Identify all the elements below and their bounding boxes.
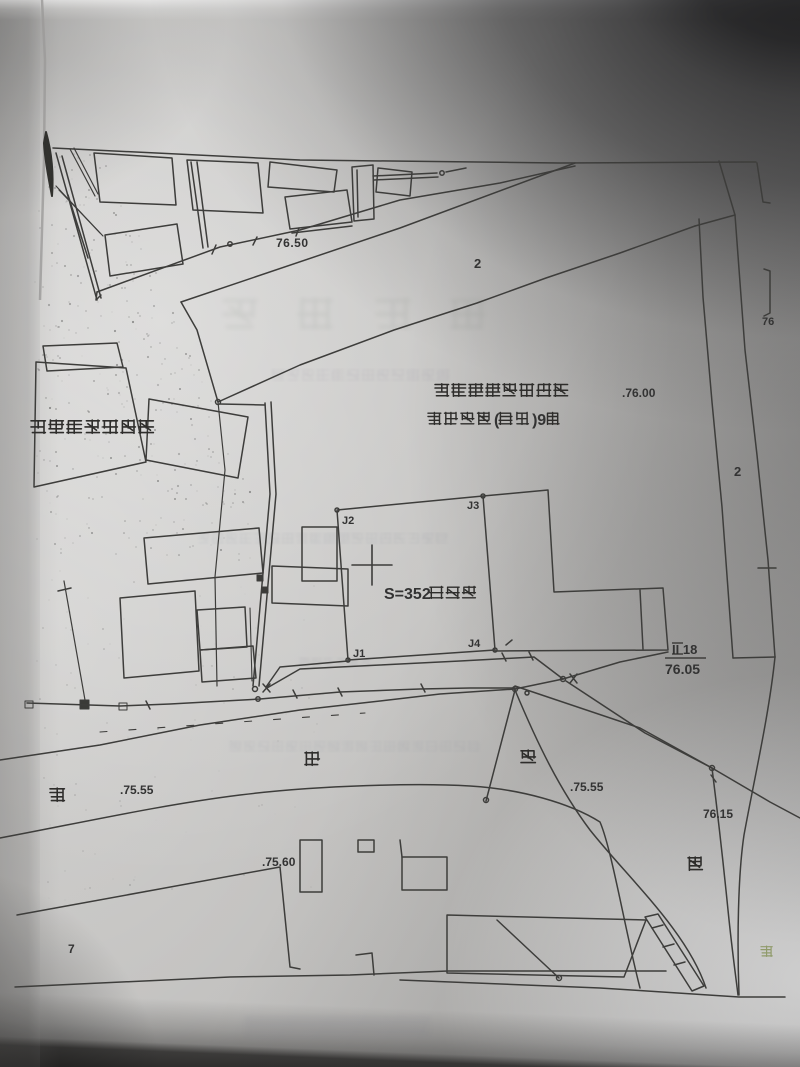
svg-text:9: 9 bbox=[537, 412, 546, 429]
svg-text:76.50: 76.50 bbox=[276, 236, 309, 250]
svg-text:J3: J3 bbox=[467, 500, 479, 512]
svg-text:S=352: S=352 bbox=[384, 586, 431, 603]
svg-text:J1: J1 bbox=[353, 648, 365, 660]
svg-text:.75.60: .75.60 bbox=[262, 855, 296, 869]
svg-text:.75.55: .75.55 bbox=[120, 783, 154, 797]
svg-text:J2: J2 bbox=[342, 515, 354, 527]
svg-text:76.15: 76.15 bbox=[703, 807, 733, 821]
svg-text:7: 7 bbox=[68, 942, 75, 956]
svg-text:76: 76 bbox=[762, 316, 774, 328]
svg-text:2: 2 bbox=[474, 256, 481, 271]
svg-text:76.05: 76.05 bbox=[665, 661, 700, 677]
svg-text:II 18: II 18 bbox=[672, 642, 697, 657]
svg-text:J4: J4 bbox=[468, 638, 481, 650]
svg-text:.76.00: .76.00 bbox=[622, 386, 656, 400]
svg-text:2: 2 bbox=[734, 464, 741, 479]
svg-text:.75.55: .75.55 bbox=[570, 780, 604, 794]
